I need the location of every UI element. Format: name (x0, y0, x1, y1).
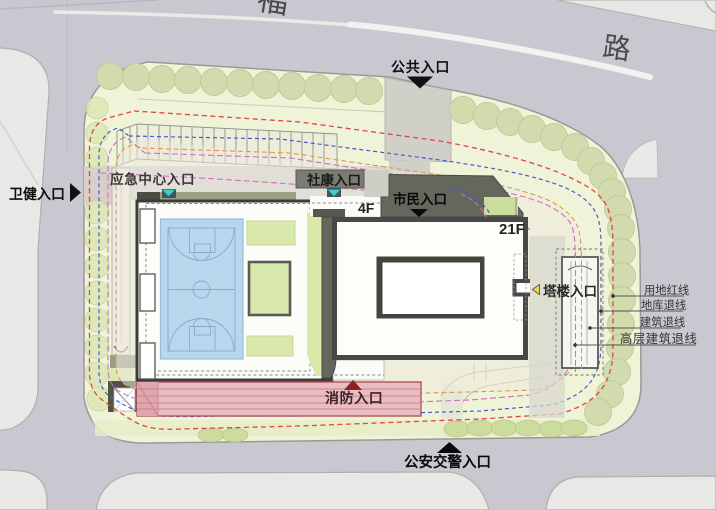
svg-text:公安交警入口: 公安交警入口 (404, 453, 491, 471)
svg-text:社康入口: 社康入口 (306, 172, 361, 188)
svg-text:公共入口: 公共入口 (391, 59, 450, 75)
svg-text:卫健入口: 卫健入口 (9, 186, 65, 202)
svg-text:地库退线: 地库退线 (641, 298, 686, 312)
svg-text:用地红线: 用地红线 (644, 283, 689, 297)
svg-text:21F: 21F (499, 221, 525, 238)
svg-text:应急中心入口: 应急中心入口 (110, 171, 195, 187)
svg-text:建筑退线: 建筑退线 (640, 315, 685, 329)
svg-text:市民入口: 市民入口 (393, 191, 447, 207)
svg-text:高层建筑退线: 高层建筑退线 (620, 331, 697, 346)
svg-text:4F: 4F (358, 200, 375, 216)
svg-text:塔楼入口: 塔楼入口 (543, 283, 597, 299)
svg-text:路: 路 (601, 31, 633, 66)
svg-text:消防入口: 消防入口 (325, 390, 383, 406)
